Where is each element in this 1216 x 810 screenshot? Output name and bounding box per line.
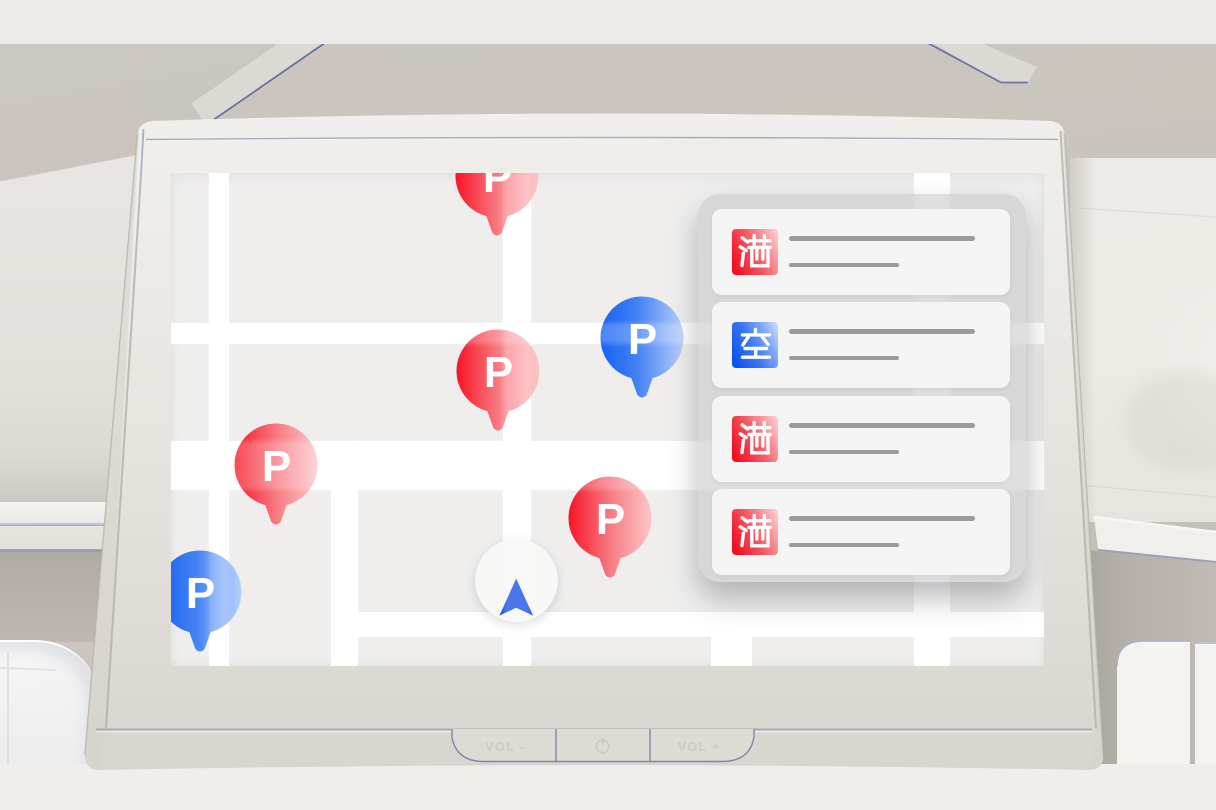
svg-text:P: P bbox=[596, 495, 625, 544]
svg-text:VOL -: VOL - bbox=[485, 739, 524, 754]
svg-text:VOL +: VOL + bbox=[678, 739, 721, 754]
